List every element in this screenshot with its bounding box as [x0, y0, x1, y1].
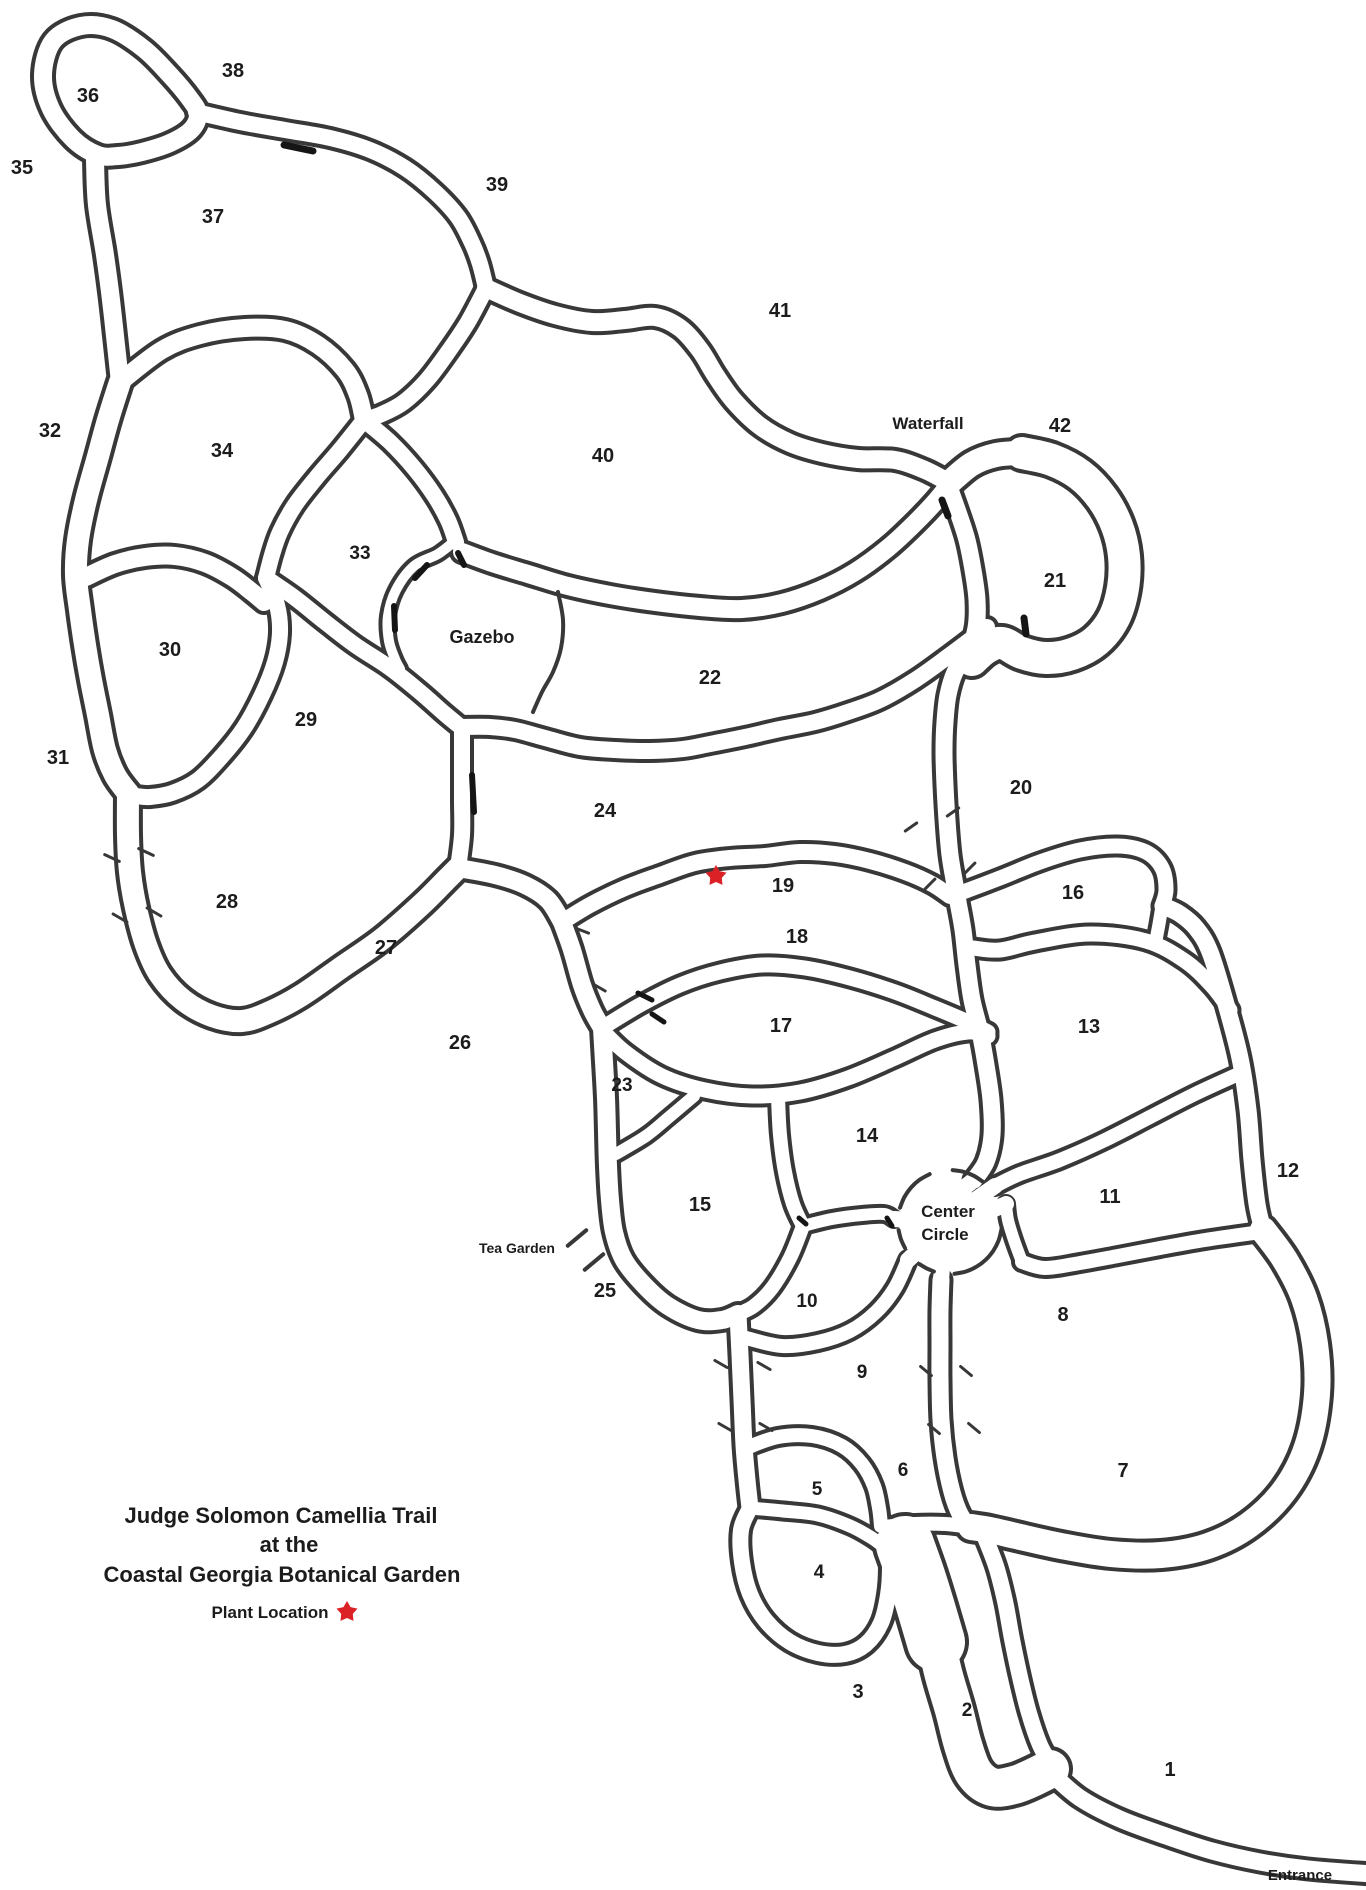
svg-text:Center: Center: [921, 1202, 975, 1221]
svg-text:23: 23: [611, 1075, 632, 1096]
svg-text:3: 3: [852, 1681, 863, 1703]
svg-text:24: 24: [594, 800, 617, 822]
svg-text:29: 29: [295, 709, 317, 731]
svg-text:19: 19: [772, 875, 794, 897]
svg-text:Judge Solomon Camellia Trail: Judge Solomon Camellia Trail: [125, 1503, 438, 1528]
svg-text:26: 26: [449, 1032, 471, 1054]
svg-text:27: 27: [375, 937, 397, 959]
svg-text:18: 18: [786, 926, 808, 948]
svg-text:38: 38: [222, 60, 244, 82]
svg-text:32: 32: [39, 420, 61, 442]
svg-text:37: 37: [202, 206, 224, 228]
svg-text:6: 6: [898, 1460, 909, 1481]
svg-text:Gazebo: Gazebo: [449, 627, 514, 647]
svg-text:39: 39: [486, 174, 508, 196]
svg-text:15: 15: [689, 1194, 711, 1216]
svg-text:9: 9: [857, 1362, 868, 1383]
svg-text:1: 1: [1164, 1759, 1175, 1781]
svg-text:25: 25: [594, 1280, 616, 1302]
svg-text:4: 4: [814, 1562, 825, 1583]
svg-text:Waterfall: Waterfall: [892, 414, 963, 433]
svg-text:Entrance: Entrance: [1268, 1867, 1332, 1884]
svg-text:5: 5: [812, 1479, 823, 1500]
svg-text:Tea Garden: Tea Garden: [479, 1240, 555, 1256]
svg-text:Plant Location: Plant Location: [211, 1603, 328, 1622]
svg-text:22: 22: [699, 667, 721, 689]
svg-text:34: 34: [211, 440, 234, 462]
svg-text:16: 16: [1062, 882, 1084, 904]
svg-text:at the: at the: [260, 1532, 319, 1557]
svg-text:31: 31: [47, 747, 69, 769]
svg-text:21: 21: [1044, 570, 1066, 592]
svg-text:41: 41: [769, 300, 791, 322]
svg-text:Circle: Circle: [921, 1225, 968, 1244]
svg-text:35: 35: [11, 157, 33, 179]
svg-text:10: 10: [796, 1291, 817, 1312]
svg-text:28: 28: [216, 891, 238, 913]
svg-text:17: 17: [770, 1015, 792, 1037]
svg-text:42: 42: [1049, 415, 1071, 437]
svg-text:8: 8: [1057, 1304, 1068, 1326]
svg-text:40: 40: [592, 445, 614, 467]
svg-text:14: 14: [856, 1125, 879, 1147]
svg-text:36: 36: [77, 85, 99, 107]
svg-text:Coastal Georgia Botanical Gard: Coastal Georgia Botanical Garden: [104, 1562, 461, 1587]
svg-text:12: 12: [1277, 1160, 1299, 1182]
svg-text:7: 7: [1117, 1460, 1128, 1482]
svg-text:11: 11: [1099, 1186, 1120, 1208]
svg-text:2: 2: [962, 1700, 973, 1721]
svg-text:13: 13: [1078, 1016, 1100, 1038]
svg-text:30: 30: [159, 639, 181, 661]
svg-text:33: 33: [349, 543, 370, 564]
svg-text:20: 20: [1010, 777, 1032, 799]
